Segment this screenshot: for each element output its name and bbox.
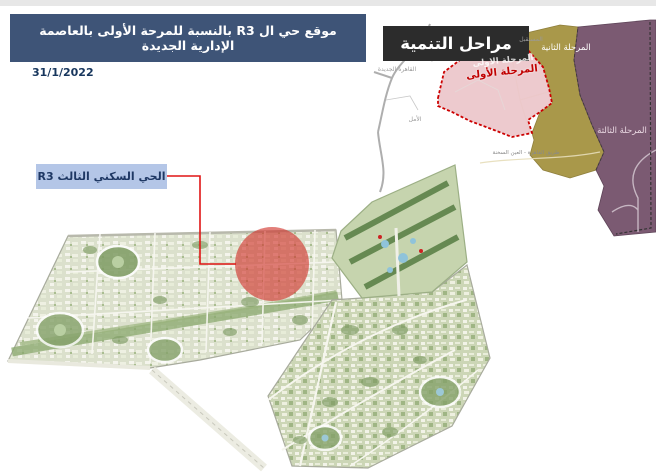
r3-callout-box: الحي السكني الثالث R3 xyxy=(36,164,167,189)
inset-bg-label-new-cairo: القاهرة الجديدة xyxy=(372,66,422,73)
r3-callout-label: الحي السكني الثالث R3 xyxy=(38,170,166,183)
date-label: 31/1/2022 xyxy=(32,66,94,79)
slide-title: موقع حي ال R3 بالنسبة للمرحة الأولى بالع… xyxy=(10,23,366,53)
inset-bg-label-amal: الأمل xyxy=(398,116,432,123)
slide: موقع حي ال R3 بالنسبة للمرحة الأولى بالع… xyxy=(0,0,656,472)
phase-3-label: المرحلة الثالثة xyxy=(584,126,656,136)
title-banner: موقع حي ال R3 بالنسبة للمرحة الأولى بالع… xyxy=(10,14,366,62)
inset-bg-label-mostakbal: المستقبل xyxy=(508,36,554,43)
main-map xyxy=(0,0,656,472)
inset-map-title: مراحل التنمية xyxy=(400,34,512,53)
main-map-government-district xyxy=(332,165,467,298)
phase-2-label: المرحلة الثانية xyxy=(539,43,593,55)
r3-highlight-circle xyxy=(235,227,309,301)
inset-road-label: طريق القاهرة - العين السخنة xyxy=(488,150,564,156)
